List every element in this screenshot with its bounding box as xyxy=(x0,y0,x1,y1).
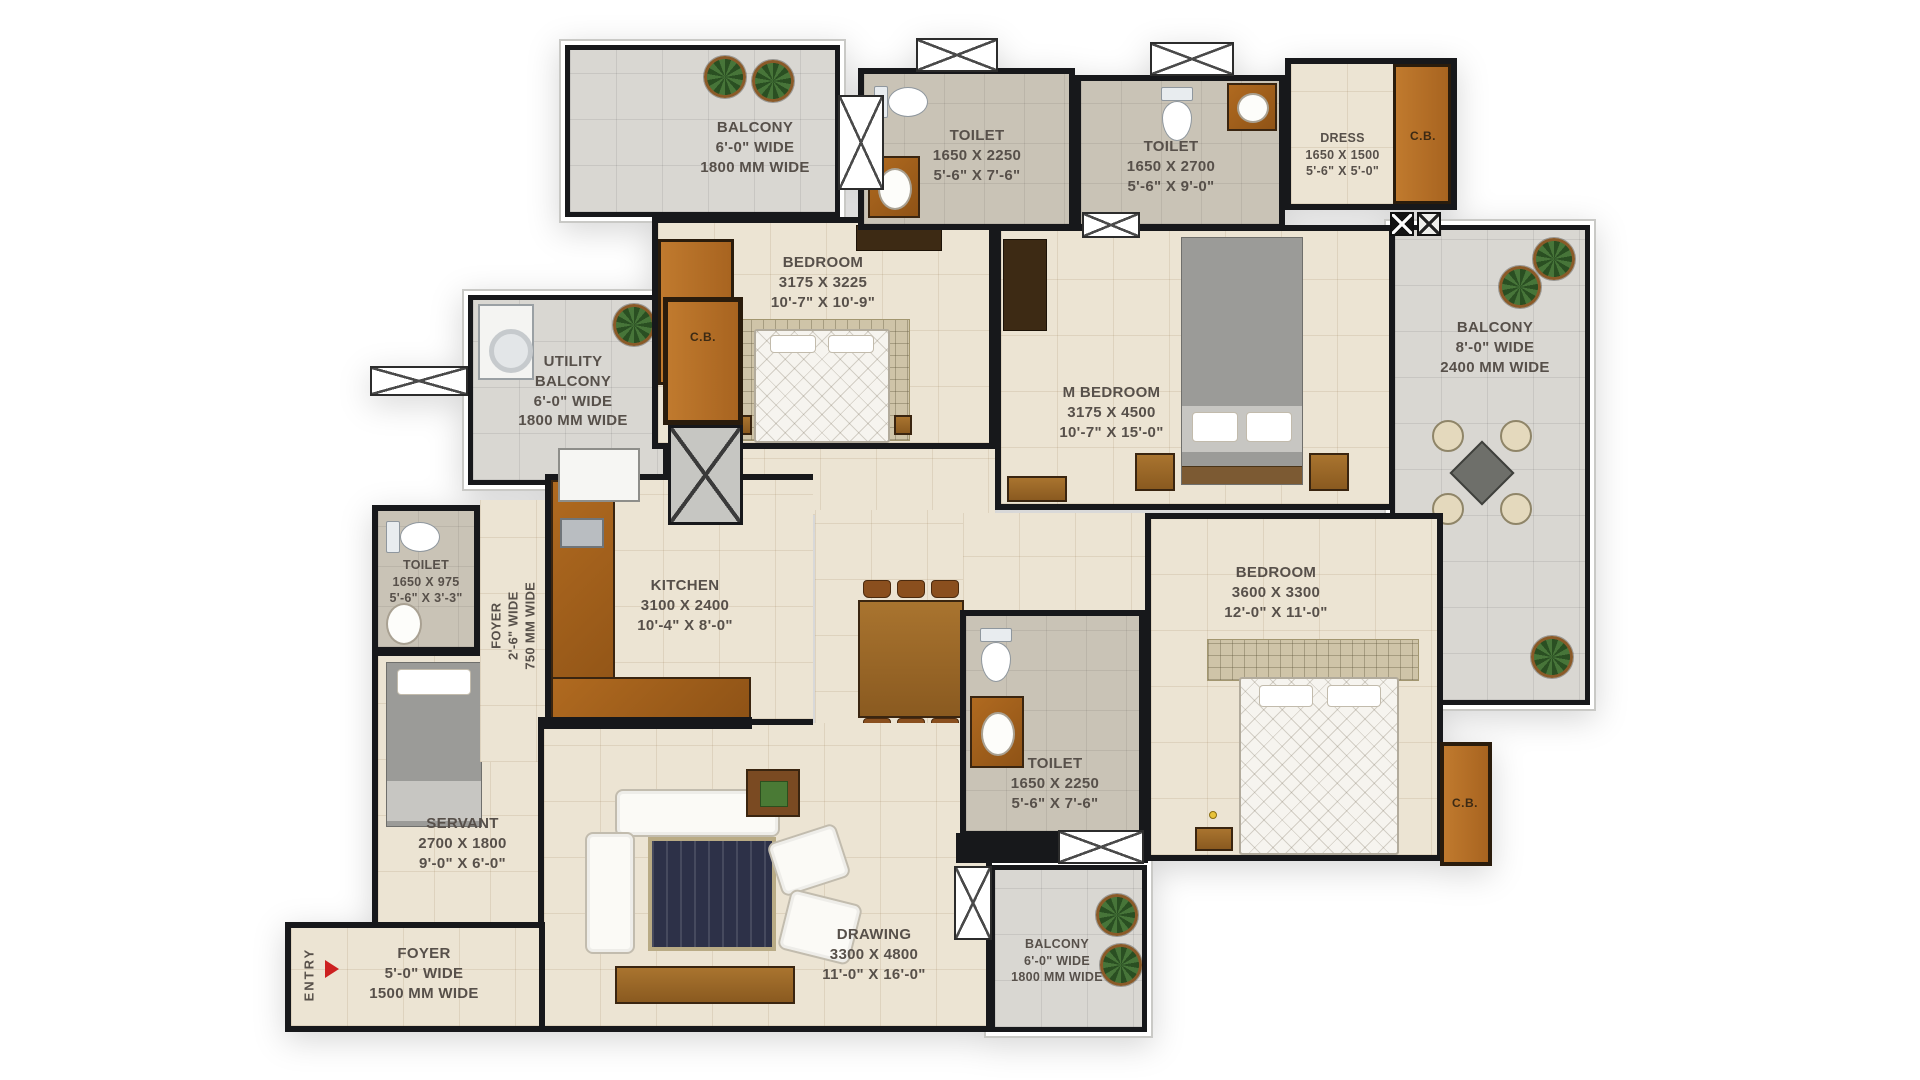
bedside-table xyxy=(1195,827,1233,851)
label-foyer-entry: FOYER5'-0" WIDE1500 MM WIDE xyxy=(349,944,499,1003)
side-table xyxy=(746,769,800,817)
patio-chair xyxy=(1500,493,1532,525)
wc-bowl xyxy=(981,642,1011,682)
shaft-marker xyxy=(1390,212,1414,236)
room-label-line: 12'-0" X 11'-0" xyxy=(1171,603,1381,623)
room-label-line: 3600 X 3300 xyxy=(1171,583,1381,603)
dining-chair xyxy=(863,580,891,598)
label-dress: DRESS1650 X 15005'-6" X 5'-0" xyxy=(1285,130,1400,180)
floor-plan: DINING2575 X 24008'-7" X 8'-0" BALCONY6'… xyxy=(0,0,1920,1080)
window xyxy=(1058,830,1144,864)
room-label-line: 5'-6" X 7'-6" xyxy=(980,794,1130,814)
room-m-bedroom: M BEDROOM3175 X 450010'-7" X 15'-0" xyxy=(995,225,1395,510)
room-label-line: 10'-4" X 8'-0" xyxy=(595,616,775,636)
label-toilet-4: TOILET1650 X 22505'-6" X 7'-6" xyxy=(980,754,1130,813)
room-label-line: BALCONY xyxy=(997,936,1117,953)
room-label-line: 2700 X 1800 xyxy=(390,834,535,854)
label-balcony-top: BALCONY6'-0" WIDE1800 MM WIDE xyxy=(670,118,840,177)
bedside-table xyxy=(1309,453,1349,491)
dining-table xyxy=(858,600,964,718)
room-foyer-entry: ENTRY FOYER5'-0" WIDE1500 MM WIDE xyxy=(285,922,545,1032)
window xyxy=(1082,212,1140,238)
room-label-line: 3300 X 4800 xyxy=(784,945,964,965)
sofa xyxy=(585,832,635,954)
label-toilet-1: TOILET1650 X 22505'-6" X 7'-6" xyxy=(902,126,1052,185)
bedside-table xyxy=(1135,453,1175,491)
pillow xyxy=(770,335,816,353)
label-utility-balcony: UTILITYBALCONY6'-0" WIDE1800 MM WIDE xyxy=(493,352,653,431)
entry-text: ENTRY xyxy=(301,948,316,1002)
wc-bowl xyxy=(888,87,928,117)
washbasin xyxy=(386,603,422,645)
wc-fixture xyxy=(386,519,442,555)
bedside-table xyxy=(894,415,912,435)
wc-fixture xyxy=(1159,87,1195,143)
label-entry: ENTRY xyxy=(300,935,317,1015)
wardrobe-cb: C.B. xyxy=(1393,64,1451,204)
room-label-line: 6'-0" WIDE xyxy=(997,953,1117,970)
double-bed xyxy=(1181,237,1303,485)
label-cb-bedroom-2: C.B. xyxy=(1452,796,1478,810)
label-foyer-corridor: FOYER2'-6" WIDE750 MM WIDE xyxy=(487,548,538,704)
room-label-line: BALCONY xyxy=(493,372,653,392)
patio-set xyxy=(1432,420,1532,525)
room-cb-utility: C.B. xyxy=(663,297,743,425)
window xyxy=(954,866,992,940)
room-label-line: 1800 MM WIDE xyxy=(670,158,840,178)
label-cb-utility: C.B. xyxy=(690,330,716,344)
foyer-corridor-floor: FOYER2'-6" WIDE750 MM WIDE xyxy=(480,500,546,762)
room-label-line: FOYER xyxy=(487,548,504,704)
wc-tank xyxy=(386,521,400,553)
room-toilet-3: TOILET1650 X 9755'-6" X 3'-3" xyxy=(372,505,480,653)
armchair xyxy=(766,822,852,898)
wc-tank xyxy=(980,628,1012,642)
window xyxy=(370,366,468,396)
room-label-line: 3175 X 3225 xyxy=(713,273,933,293)
label-kitchen: KITCHEN3100 X 240010'-4" X 8'-0" xyxy=(595,576,775,635)
label-bedroom-2: BEDROOM3600 X 330012'-0" X 11'-0" xyxy=(1171,563,1381,622)
pillow xyxy=(1246,412,1292,442)
window xyxy=(1150,42,1234,76)
room-label-line: 5'-6" X 5'-0" xyxy=(1285,163,1400,180)
tv-unit xyxy=(1003,239,1047,331)
room-label-line: 750 MM WIDE xyxy=(522,548,539,704)
window xyxy=(916,38,998,72)
patio-chair xyxy=(1500,420,1532,452)
label-balcony-bottom: BALCONY6'-0" WIDE1800 MM WIDE xyxy=(997,936,1117,986)
room-label-line: M BEDROOM xyxy=(1029,383,1194,403)
room-balcony-bottom: BALCONY6'-0" WIDE1800 MM WIDE xyxy=(990,865,1147,1032)
patio-chair xyxy=(1432,420,1464,452)
room-label-line: TOILET xyxy=(980,754,1130,774)
washbasin-counter xyxy=(1227,83,1277,131)
label-balcony-right: BALCONY8'-0" WIDE2400 MM WIDE xyxy=(1410,318,1580,377)
room-label-line: 3175 X 4500 xyxy=(1029,403,1194,423)
potted-plant xyxy=(704,56,746,98)
room-label-line: 5'-6" X 3'-3" xyxy=(376,590,476,607)
room-label-line: 2'-6" WIDE xyxy=(504,548,521,704)
carpet xyxy=(1207,639,1419,681)
double-bed xyxy=(754,329,890,443)
pillow xyxy=(828,335,874,353)
room-balcony-top: BALCONY6'-0" WIDE1800 MM WIDE xyxy=(565,45,840,217)
room-toilet-4: TOILET1650 X 22505'-6" X 7'-6" xyxy=(960,610,1145,837)
room-toilet-2: TOILET1650 X 27005'-6" X 9'-0" xyxy=(1075,75,1285,230)
dining-chair xyxy=(897,580,925,598)
label-servant: SERVANT2700 X 18009'-0" X 6'-0" xyxy=(390,814,535,873)
room-label-line: TOILET xyxy=(1081,137,1261,157)
dresser xyxy=(1007,476,1067,502)
label-bedroom-1: BEDROOM3175 X 322510'-7" X 10'-9" xyxy=(713,253,933,312)
room-bedroom-2: BEDROOM3600 X 330012'-0" X 11'-0" xyxy=(1145,513,1443,861)
room-label-line: 5'-0" WIDE xyxy=(349,964,499,984)
room-label-line: 6'-0" WIDE xyxy=(670,138,840,158)
room-label-line: DRESS xyxy=(1285,130,1400,147)
room-label-line: 1650 X 2250 xyxy=(980,774,1130,794)
label-m-bedroom: M BEDROOM3175 X 450010'-7" X 15'-0" xyxy=(1029,383,1194,442)
entry-arrow-icon xyxy=(325,960,339,978)
tv-cabinet xyxy=(615,966,795,1004)
room-label-line: TOILET xyxy=(902,126,1052,146)
washbasin xyxy=(1237,93,1269,123)
room-label-line: 2400 MM WIDE xyxy=(1410,358,1580,378)
wall-segment xyxy=(538,717,752,729)
pillow xyxy=(1192,412,1238,442)
window xyxy=(838,95,884,190)
label-drawing: DRAWING3300 X 480011'-0" X 16'-0" xyxy=(784,925,964,984)
room-label-line: 10'-7" X 15'-0" xyxy=(1029,423,1194,443)
passage-bedroom-2 xyxy=(963,513,1145,613)
table-lamp xyxy=(1209,811,1217,819)
room-label-line: 11'-0" X 16'-0" xyxy=(784,965,964,985)
room-label-line: KITCHEN xyxy=(595,576,775,596)
room-label-line: 9'-0" X 6'-0" xyxy=(390,854,535,874)
room-label-line: BALCONY xyxy=(1410,318,1580,338)
room-label-line: 6'-0" WIDE xyxy=(493,392,653,412)
wc-tank xyxy=(1161,87,1193,101)
room-toilet-1: TOILET1650 X 22505'-6" X 7'-6" xyxy=(858,68,1075,230)
room-drawing: DRAWING3300 X 480011'-0" X 16'-0" xyxy=(538,723,992,1032)
double-bed xyxy=(1239,677,1399,855)
label-toilet-2: TOILET1650 X 27005'-6" X 9'-0" xyxy=(1081,137,1261,196)
pillow xyxy=(397,669,471,695)
room-label-line: 1650 X 1500 xyxy=(1285,147,1400,164)
potted-plant xyxy=(752,60,794,102)
room-label-line: FOYER xyxy=(349,944,499,964)
planter xyxy=(760,781,788,807)
kitchen-counter xyxy=(551,677,751,719)
room-label-line: 1800 MM WIDE xyxy=(493,411,653,431)
pillow xyxy=(1327,685,1381,707)
potted-plant xyxy=(1533,238,1575,280)
wc-fixture xyxy=(978,628,1014,684)
dining-chair xyxy=(931,580,959,598)
room-label-line: 5'-6" X 9'-0" xyxy=(1081,177,1261,197)
room-label-line: UTILITY xyxy=(493,352,653,372)
kitchen-sink xyxy=(560,518,604,548)
room-label-line: 8'-0" WIDE xyxy=(1410,338,1580,358)
room-label-line: 10'-7" X 10'-9" xyxy=(713,293,933,313)
wc-bowl xyxy=(400,522,440,552)
room-label-line: SERVANT xyxy=(390,814,535,834)
potted-plant xyxy=(1499,266,1541,308)
room-label-line: 1800 MM WIDE xyxy=(997,969,1117,986)
room-label-line: DRAWING xyxy=(784,925,964,945)
room-label-line: 5'-6" X 7'-6" xyxy=(902,166,1052,186)
label-toilet-3: TOILET1650 X 9755'-6" X 3'-3" xyxy=(376,557,476,607)
room-label-line: 1500 MM WIDE xyxy=(349,984,499,1004)
shaft xyxy=(668,425,743,525)
room-label-line: BEDROOM xyxy=(1171,563,1381,583)
potted-plant xyxy=(1531,636,1573,678)
room-label-line: 1650 X 2700 xyxy=(1081,157,1261,177)
room-label-line: 1650 X 975 xyxy=(376,574,476,591)
headboard xyxy=(1182,466,1302,484)
pillow xyxy=(1259,685,1313,707)
kitchen-platform xyxy=(558,448,640,502)
room-label-line: 1650 X 2250 xyxy=(902,146,1052,166)
wc-bowl xyxy=(1162,101,1192,141)
shaft-marker xyxy=(1417,212,1441,236)
room-dress: C.B. DRESS1650 X 15005'-6" X 5'-0" xyxy=(1285,58,1457,210)
room-cb-bedroom-2: C.B. xyxy=(1440,742,1492,866)
single-bed xyxy=(386,662,482,827)
label-cb-dress: C.B. xyxy=(1410,129,1436,143)
potted-plant xyxy=(1096,894,1138,936)
room-label-line: BALCONY xyxy=(670,118,840,138)
room-label-line: TOILET xyxy=(376,557,476,574)
rug xyxy=(648,837,776,951)
potted-plant xyxy=(613,304,655,346)
room-label-line: 3100 X 2400 xyxy=(595,596,775,616)
washbasin xyxy=(981,712,1015,756)
room-label-line: BEDROOM xyxy=(713,253,933,273)
